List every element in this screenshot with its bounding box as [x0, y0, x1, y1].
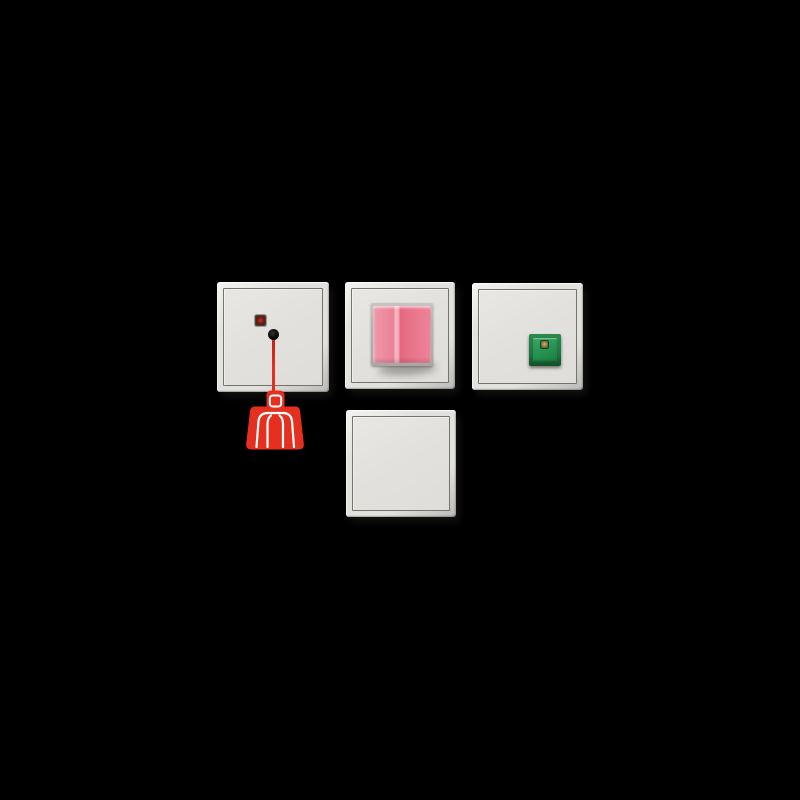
- scene: [0, 0, 800, 800]
- green-cancel-button[interactable]: [533, 338, 557, 362]
- plate-pink-rocker-switch: [345, 282, 455, 389]
- plate-blank-cover: [346, 410, 456, 517]
- person-pictogram-handle: [246, 391, 304, 450]
- plate-pull-cord-call-switch: [217, 282, 329, 392]
- plate-inner-frame: [352, 416, 450, 511]
- pink-rocker[interactable]: [373, 306, 431, 363]
- call-led-indicator: [256, 316, 265, 325]
- plate-inner-frame: [478, 289, 577, 384]
- plate-green-cancel-button: [472, 283, 583, 390]
- pull-handle[interactable]: [243, 390, 305, 452]
- button-led-indicator: [541, 341, 548, 348]
- cord-outlet-hole: [268, 329, 279, 340]
- pull-cord[interactable]: [272, 336, 275, 392]
- green-button-frame: [529, 334, 561, 366]
